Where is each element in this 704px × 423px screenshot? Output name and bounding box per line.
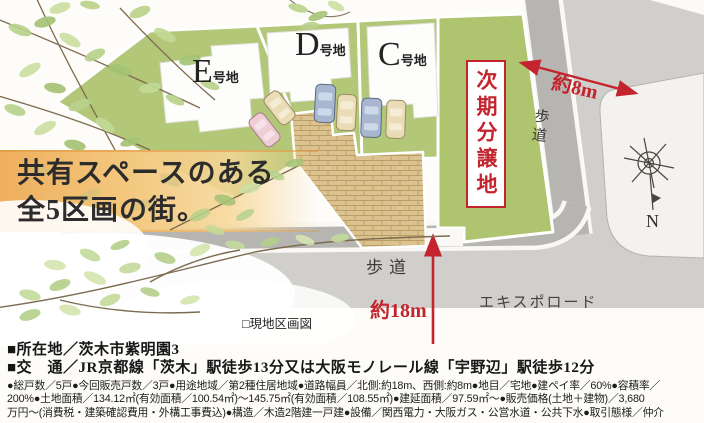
spec-line-3: 万円～(消費税・建築確認費用・外構工事費込)●構造／木造2階建一戸建●設備／関西… [7, 407, 701, 420]
property-info: ■所在地／茨木市紫明園3 ■交 通／JR京都線「茨木」駅徒歩13分又は大阪モノレ… [7, 341, 701, 420]
lot-label-e: E号地 [192, 53, 239, 91]
spec-line-2: 200%●土地面積／134.12㎡(有効面積／100.54㎡)～145.75㎡(… [7, 393, 701, 406]
lot-c-letter: C [378, 36, 401, 73]
access-line: ■交 通／JR京都線「茨木」駅徒歩13分又は大阪モノレール線「宇野辺」駅徒歩12… [7, 359, 701, 377]
leaf-cluster-top-left [0, 0, 221, 152]
spec-lines: ●総戸数／5戸●今回販売戸数／3戸●用途地域／第2種住居地域●道路幅員／北側:約… [7, 380, 701, 420]
lot-e-suffix: 号地 [213, 70, 239, 85]
lot-c-suffix: 号地 [401, 53, 427, 68]
road-name-label: エキスポロード [479, 291, 598, 312]
flyer-page: N [0, 0, 704, 423]
sidewalk-label-south: 歩道 [366, 253, 412, 278]
headline-line2: 全5区画の街。 [17, 192, 275, 229]
next-phase-label-box: 次期分譲地 [466, 60, 506, 208]
headline-line1: 共有スペースのある [17, 155, 275, 192]
road-width-18m: 約18m [370, 294, 427, 323]
lot-e-letter: E [192, 53, 213, 90]
lot-label-d: D号地 [295, 26, 346, 64]
lot-d-letter: D [295, 26, 320, 63]
lot-d-suffix: 号地 [320, 43, 346, 58]
lot-label-c: C号地 [378, 36, 427, 74]
headline-text: 共有スペースのある 全5区画の街。 [17, 155, 275, 229]
location-line: ■所在地／茨木市紫明園3 [7, 341, 701, 359]
spec-line-1: ●総戸数／5戸●今回販売戸数／3戸●用途地域／第2種住居地域●道路幅員／北側:約… [7, 380, 701, 393]
map-caption: □現地区画図 [242, 313, 312, 332]
